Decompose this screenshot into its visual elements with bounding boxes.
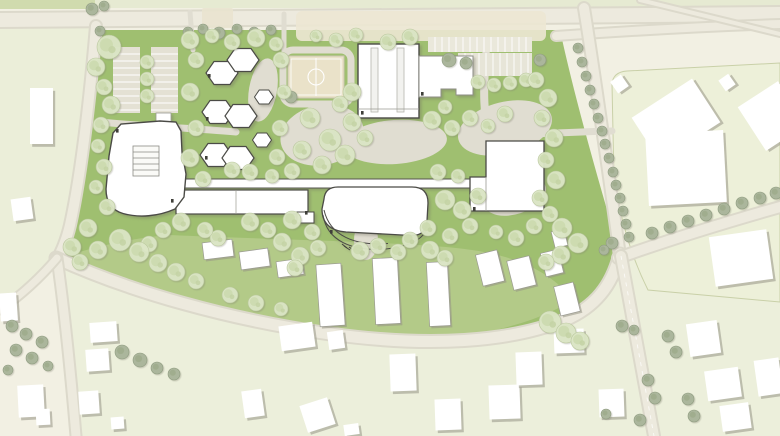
tree-texture: [599, 128, 604, 133]
deciduous-tree-icon: [487, 78, 501, 92]
deciduous-tree-icon: [552, 246, 570, 264]
street-tree-icon: [615, 193, 625, 203]
street-tree-icon: [585, 85, 595, 95]
deciduous-tree-icon: [402, 29, 418, 45]
building-label: [116, 129, 119, 133]
context-building: [89, 321, 120, 346]
tree-texture-2: [430, 249, 435, 254]
tree-texture-2: [205, 229, 210, 234]
context-building-body: [78, 390, 100, 414]
tree-texture-2: [356, 34, 360, 38]
context-building-body: [30, 88, 53, 144]
tree-texture-2: [300, 255, 305, 260]
tree-texture-2: [276, 43, 280, 47]
tree-texture-2: [488, 125, 492, 129]
street-tree-icon: [597, 126, 607, 136]
deciduous-tree-icon: [149, 254, 167, 272]
tree-texture: [664, 332, 670, 338]
context-building-body: [0, 292, 18, 321]
tree-texture-2: [516, 237, 521, 242]
deciduous-tree-icon: [96, 159, 112, 175]
tree-texture-2: [181, 221, 186, 226]
tree-texture: [772, 189, 778, 195]
tree-texture-2: [281, 59, 286, 64]
deciduous-tree-icon: [489, 225, 503, 239]
context-building: [36, 409, 53, 429]
tree-texture-2: [316, 36, 320, 40]
tree-texture-2: [232, 169, 237, 174]
deciduous-tree-icon: [274, 302, 288, 316]
tree-texture: [606, 155, 611, 160]
deciduous-tree-icon: [222, 287, 238, 303]
building-label: [171, 199, 174, 203]
street-tree-icon: [534, 54, 546, 66]
tree-texture: [644, 376, 650, 382]
deciduous-tree-icon: [481, 119, 495, 133]
deciduous-tree-icon: [542, 206, 558, 222]
street-tree-icon: [115, 345, 129, 359]
context-building: [488, 384, 522, 422]
context-building-body: [709, 229, 773, 287]
beige-square: [202, 8, 233, 28]
context-building-body: [434, 399, 461, 431]
deciduous-tree-icon: [453, 201, 471, 219]
tree-texture-2: [284, 91, 288, 95]
deciduous-tree-icon: [435, 190, 455, 210]
street-tree-icon: [624, 232, 634, 242]
tree-texture-2: [190, 91, 195, 96]
tree-texture-2: [534, 225, 539, 230]
tree-texture: [617, 195, 622, 200]
hex-pavilion-small: [253, 133, 272, 147]
tree-texture-2: [438, 171, 443, 176]
tree-texture: [268, 27, 273, 32]
tree-texture: [626, 234, 631, 239]
tree-texture-2: [445, 257, 450, 262]
tree-texture-2: [190, 157, 195, 162]
tree-texture-2: [462, 209, 467, 214]
tree-texture: [579, 59, 584, 64]
deciduous-tree-icon: [283, 211, 301, 229]
tree-texture-2: [546, 159, 551, 164]
street-tree-icon: [682, 393, 694, 405]
deciduous-tree-icon: [269, 149, 285, 165]
tree-texture: [462, 59, 468, 65]
tree-texture-2: [470, 225, 475, 230]
deciduous-tree-icon: [181, 31, 199, 49]
street-tree-icon: [688, 410, 700, 422]
deciduous-tree-icon: [547, 171, 565, 189]
tree-texture-2: [190, 39, 195, 44]
tree-texture-2: [336, 39, 340, 43]
tree-texture: [620, 208, 625, 213]
deciduous-tree-icon: [97, 35, 121, 59]
tree-texture-2: [452, 127, 457, 132]
tree-texture: [97, 28, 102, 33]
tree-texture-2: [310, 117, 316, 123]
gym-skylight: [371, 48, 378, 112]
tree-texture-2: [218, 237, 223, 242]
deciduous-tree-icon: [438, 100, 452, 114]
tree-texture-2: [163, 229, 168, 234]
deciduous-tree-icon: [287, 260, 303, 276]
tree-texture-2: [272, 175, 276, 179]
tree-texture-2: [445, 199, 451, 205]
deciduous-tree-icon: [497, 106, 513, 122]
deciduous-tree-icon: [370, 238, 386, 254]
tree-texture: [5, 367, 10, 372]
tree-texture-2: [256, 37, 261, 42]
tree-texture-2: [478, 81, 482, 85]
deciduous-tree-icon: [293, 141, 311, 159]
context-building: [327, 330, 348, 353]
tree-texture: [613, 182, 618, 187]
tree-texture-2: [158, 262, 163, 267]
deciduous-tree-icon: [273, 52, 289, 68]
tree-texture: [602, 141, 607, 146]
tree-texture-2: [250, 171, 255, 176]
tree-texture: [623, 221, 628, 226]
building-label: [473, 207, 476, 211]
tree-texture: [587, 87, 592, 92]
rounded-building: [322, 187, 428, 236]
tree-texture-2: [340, 103, 345, 108]
building-wing: [176, 190, 308, 214]
tree-texture: [170, 370, 176, 376]
deciduous-tree-icon: [343, 113, 361, 131]
street-tree-icon: [664, 221, 676, 233]
tree-texture-2: [546, 261, 551, 266]
tree-texture-2: [398, 251, 403, 256]
tree-texture-2: [196, 59, 201, 64]
tree-texture-2: [510, 82, 514, 86]
tree-texture: [636, 416, 642, 422]
tree-texture-2: [542, 117, 547, 122]
tree-texture: [575, 45, 580, 50]
tree-texture: [583, 73, 588, 78]
deciduous-tree-icon: [181, 149, 199, 167]
site-plan: [0, 0, 780, 436]
deciduous-tree-icon: [140, 72, 154, 86]
context-building-body: [488, 384, 520, 419]
residential-building: [372, 257, 402, 326]
site-plan-svg: [0, 0, 780, 436]
street-tree-icon: [770, 187, 780, 199]
deciduous-tree-icon: [332, 96, 348, 112]
tree-texture-2: [176, 271, 181, 276]
deciduous-tree-icon: [167, 263, 185, 281]
tree-texture-2: [478, 195, 483, 200]
street-tree-icon: [589, 99, 599, 109]
tree-texture-2: [302, 149, 307, 154]
deciduous-tree-icon: [79, 219, 97, 237]
tree-texture-2: [566, 332, 572, 338]
tree-texture-2: [277, 156, 282, 161]
tree-texture: [595, 115, 600, 120]
tree-texture-2: [322, 164, 327, 169]
deciduous-tree-icon: [532, 190, 548, 206]
deciduous-tree-icon: [304, 224, 320, 240]
residential-building-body: [426, 261, 450, 326]
residential-building-body: [372, 257, 400, 324]
residential-building-body: [316, 263, 345, 327]
street-tree-icon: [600, 139, 610, 149]
deciduous-tree-icon: [528, 72, 544, 88]
context-building-body: [241, 389, 265, 419]
deciduous-tree-icon: [319, 129, 341, 151]
deciduous-tree-icon: [313, 156, 331, 174]
deciduous-tree-icon: [508, 230, 524, 246]
deciduous-tree-icon: [545, 129, 563, 147]
building-label: [305, 211, 308, 215]
street-tree-icon: [26, 352, 38, 364]
tree-texture-2: [232, 41, 237, 46]
tree-texture: [702, 211, 708, 217]
street-tree-icon: [10, 344, 22, 356]
street-tree-icon: [629, 325, 639, 335]
tree-texture: [720, 205, 726, 211]
street-tree-icon: [20, 328, 32, 340]
tree-texture-2: [410, 36, 415, 41]
tree-texture-2: [268, 229, 273, 234]
context-building: [645, 130, 729, 209]
context-building-body: [89, 321, 117, 343]
deciduous-tree-icon: [420, 220, 436, 236]
tree-texture-2: [580, 340, 585, 345]
deciduous-tree-icon: [155, 222, 171, 238]
tree-texture-2: [428, 227, 433, 232]
street-tree-icon: [36, 336, 48, 348]
context-building: [434, 398, 463, 433]
street-tree-icon: [442, 53, 456, 67]
deciduous-tree-icon: [91, 139, 105, 153]
deciduous-tree-icon: [248, 295, 264, 311]
tree-texture-2: [562, 227, 568, 233]
context-building: [30, 88, 55, 147]
tree-texture: [117, 347, 124, 354]
context-building: [278, 321, 318, 354]
tree-texture: [591, 101, 596, 106]
hex-pavilion-small: [255, 90, 274, 104]
deciduous-tree-icon: [63, 238, 81, 256]
deciduous-tree-icon: [526, 218, 542, 234]
context-building-body: [719, 402, 751, 432]
street-tree-icon: [621, 219, 631, 229]
deciduous-tree-icon: [188, 120, 204, 136]
street-tree-icon: [608, 167, 618, 177]
tree-texture-2: [104, 166, 109, 171]
tree-texture-2: [72, 246, 77, 251]
tree-texture-2: [101, 124, 106, 129]
tree-texture-2: [98, 249, 103, 254]
tree-texture-2: [98, 145, 102, 149]
building-label: [208, 74, 211, 78]
context-building-body: [11, 197, 34, 222]
street-tree-icon: [43, 361, 53, 371]
street-tree-icon: [581, 71, 591, 81]
context-building: [709, 229, 776, 290]
tree-texture-2: [196, 127, 201, 132]
tree-texture: [38, 338, 44, 344]
deciduous-tree-icon: [539, 89, 557, 107]
deciduous-tree-icon: [93, 117, 109, 133]
deciduous-tree-icon: [72, 254, 88, 270]
tree-texture: [200, 26, 205, 31]
context-building-body: [515, 352, 542, 386]
context-building: [0, 292, 20, 324]
tree-texture-2: [505, 113, 510, 118]
street-tree-icon: [6, 320, 18, 332]
tree-texture: [610, 169, 615, 174]
deciduous-tree-icon: [224, 162, 240, 178]
context-building: [719, 402, 754, 435]
deciduous-tree-icon: [242, 164, 258, 180]
context-building-body: [704, 367, 742, 401]
tree-texture: [631, 327, 636, 332]
tree-texture-2: [548, 97, 553, 102]
street-tree-icon: [599, 245, 609, 255]
tree-texture-2: [378, 245, 383, 250]
tree-texture: [618, 322, 624, 328]
tree-texture: [45, 363, 50, 368]
sports-court: [288, 56, 344, 98]
context-building: [686, 320, 724, 360]
deciduous-tree-icon: [277, 85, 291, 99]
street-tree-icon: [618, 206, 628, 216]
tree-texture-2: [292, 170, 297, 175]
tree-texture: [690, 412, 696, 418]
context-building-body: [686, 320, 721, 357]
deciduous-tree-icon: [197, 222, 213, 238]
context-building: [389, 353, 419, 394]
context-building-body: [36, 409, 51, 426]
tree-texture-2: [111, 104, 116, 109]
deciduous-tree-icon: [109, 229, 131, 251]
street-tree-icon: [718, 203, 730, 215]
deciduous-tree-icon: [89, 241, 107, 259]
street-tree-icon: [86, 3, 98, 15]
street-tree-icon: [3, 365, 13, 375]
context-building-body: [343, 423, 359, 436]
deciduous-tree-icon: [310, 240, 326, 256]
residential-building-body: [239, 248, 270, 270]
tree-texture-2: [292, 219, 297, 224]
deciduous-tree-icon: [96, 79, 112, 95]
tree-texture-2: [388, 41, 393, 46]
tree-texture-2: [318, 247, 323, 252]
parking-ne-top-surface: [428, 37, 532, 52]
deciduous-tree-icon: [188, 52, 204, 68]
street-tree-icon: [577, 57, 587, 67]
deciduous-tree-icon: [534, 110, 550, 126]
tree-texture: [444, 55, 451, 62]
tree-texture-2: [556, 179, 561, 184]
deciduous-tree-icon: [444, 120, 460, 136]
street-tree-icon: [151, 362, 163, 374]
stair-atrium: [133, 146, 159, 176]
street-tree-icon: [634, 414, 646, 426]
context-building-body: [389, 354, 416, 392]
residential-building: [316, 263, 347, 329]
street-tree-icon: [460, 57, 472, 69]
tree-texture: [8, 322, 14, 328]
street-tree-icon: [168, 368, 180, 380]
gym-skylight: [397, 48, 404, 112]
deciduous-tree-icon: [552, 218, 572, 238]
tree-texture-2: [256, 302, 261, 307]
street-tree-icon: [593, 113, 603, 123]
tree-texture-2: [196, 280, 201, 285]
deciduous-tree-icon: [430, 164, 446, 180]
deciduous-tree-icon: [99, 199, 115, 215]
tree-texture: [88, 5, 94, 11]
deciduous-tree-icon: [451, 169, 465, 183]
tree-texture: [536, 56, 542, 62]
deciduous-tree-icon: [310, 30, 322, 42]
tree-texture-2: [410, 239, 415, 244]
context-building: [704, 366, 744, 404]
context-building-body: [85, 348, 109, 372]
tree-texture-2: [107, 206, 112, 211]
deciduous-tree-icon: [247, 29, 265, 47]
deciduous-tree-icon: [102, 96, 120, 114]
parking-ne-top: [428, 37, 532, 52]
tree-texture: [651, 394, 657, 400]
deciduous-tree-icon: [272, 120, 288, 136]
deciduous-tree-icon: [129, 242, 149, 262]
deciduous-tree-icon: [265, 169, 279, 183]
deciduous-tree-icon: [568, 233, 588, 253]
tree-texture: [684, 217, 690, 223]
context-building: [241, 388, 267, 421]
street-tree-icon: [232, 24, 242, 34]
deciduous-tree-icon: [284, 163, 300, 179]
tree-texture-2: [352, 121, 357, 126]
deciduous-tree-icon: [351, 242, 369, 260]
deciduous-tree-icon: [260, 222, 276, 238]
tree-texture-2: [550, 213, 555, 218]
tree-texture-2: [203, 178, 208, 183]
context-building: [515, 351, 544, 388]
tree-texture-2: [345, 154, 351, 160]
tree-texture: [603, 411, 608, 416]
tree-texture: [648, 229, 654, 235]
deciduous-tree-icon: [442, 228, 458, 244]
tree-texture: [234, 26, 239, 31]
tree-texture-2: [88, 227, 93, 232]
residential-building: [239, 248, 272, 272]
deciduous-tree-icon: [380, 34, 396, 50]
building-label: [205, 156, 208, 160]
tree-texture: [756, 194, 762, 200]
deciduous-tree-icon: [195, 171, 211, 187]
deciduous-tree-icon: [300, 108, 320, 128]
street-tree-icon: [266, 25, 276, 35]
deciduous-tree-icon: [349, 28, 363, 42]
tree-texture: [101, 3, 106, 8]
tree-texture: [22, 330, 28, 336]
tree-texture-2: [494, 84, 498, 88]
tree-texture-2: [212, 35, 216, 39]
tree-texture-2: [360, 250, 365, 255]
tree-texture-2: [281, 308, 285, 312]
tree-texture: [153, 364, 159, 370]
context-building-body: [327, 330, 345, 350]
deciduous-tree-icon: [470, 188, 486, 204]
tree-texture-2: [119, 239, 126, 246]
deciduous-tree-icon: [87, 58, 105, 76]
context-building: [11, 196, 36, 224]
